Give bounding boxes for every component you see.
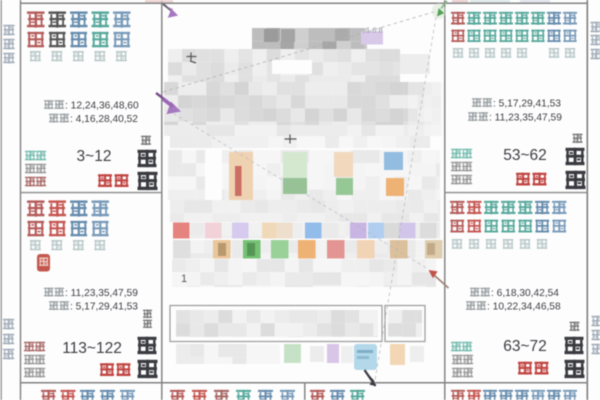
svg-text:3~12: 3~12 [77,148,112,165]
svg-text:: 5,17,29,41,53: : 5,17,29,41,53 [70,302,138,313]
svg-text:: 11,23,35,47,59: : 11,23,35,47,59 [489,113,562,124]
svg-text:63~72: 63~72 [503,338,547,355]
svg-text:1.6.8: 1.6.8 [366,26,383,35]
svg-text:113~122: 113~122 [62,340,122,357]
svg-text:: 4,16,28,40,52: : 4,16,28,40,52 [70,114,138,125]
svg-text:: 11,23,35,47,59: : 11,23,35,47,59 [65,288,138,299]
svg-text:1: 1 [181,273,187,285]
svg-text:: 5,17,29,41,53: : 5,17,29,41,53 [493,99,561,110]
svg-text:: 6,18,30,42,54: : 6,18,30,42,54 [491,288,559,299]
svg-text:: 10,22,34,46,58: : 10,22,34,46,58 [487,302,561,313]
svg-text:: 12,24,36,48,60: : 12,24,36,48,60 [65,101,139,112]
svg-text:53~62: 53~62 [503,147,547,164]
